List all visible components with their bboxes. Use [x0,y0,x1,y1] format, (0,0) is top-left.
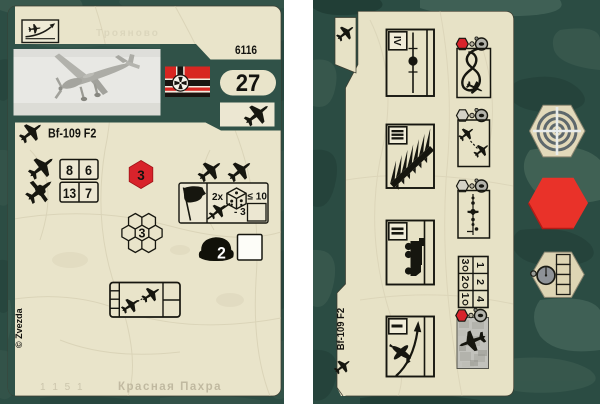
svg-text:13: 13 [63,185,76,201]
svg-text:6: 6 [85,162,92,178]
svg-text:8: 8 [66,162,73,178]
svg-text:2: 2 [217,244,226,263]
svg-text:2: 2 [459,276,471,282]
svg-text:Bf-109 F2: Bf-109 F2 [336,307,348,350]
svg-text:Трояново: Трояново [96,28,160,39]
svg-text:7: 7 [85,185,92,201]
svg-text:IV: IV [391,36,403,46]
svg-text:© Zvezda: © Zvezda [14,307,24,348]
svg-text:27: 27 [236,69,261,96]
svg-text:1: 1 [474,262,486,268]
svg-text:3: 3 [137,168,145,183]
svg-text:3: 3 [459,259,471,265]
svg-text:2x: 2x [212,192,223,203]
svg-text:1: 1 [459,293,471,299]
svg-text:Bf-109 F2: Bf-109 F2 [48,127,97,141]
svg-text:6116: 6116 [235,44,257,57]
svg-text:Красная Пахра: Красная Пахра [118,381,222,393]
svg-text:4: 4 [474,296,486,302]
svg-text:1 1 5 1: 1 1 5 1 [40,382,85,393]
svg-text:≤ 10: ≤ 10 [248,192,268,203]
svg-text:3: 3 [139,227,146,241]
svg-text:2: 2 [474,279,486,285]
svg-text:- 3: - 3 [234,207,246,218]
